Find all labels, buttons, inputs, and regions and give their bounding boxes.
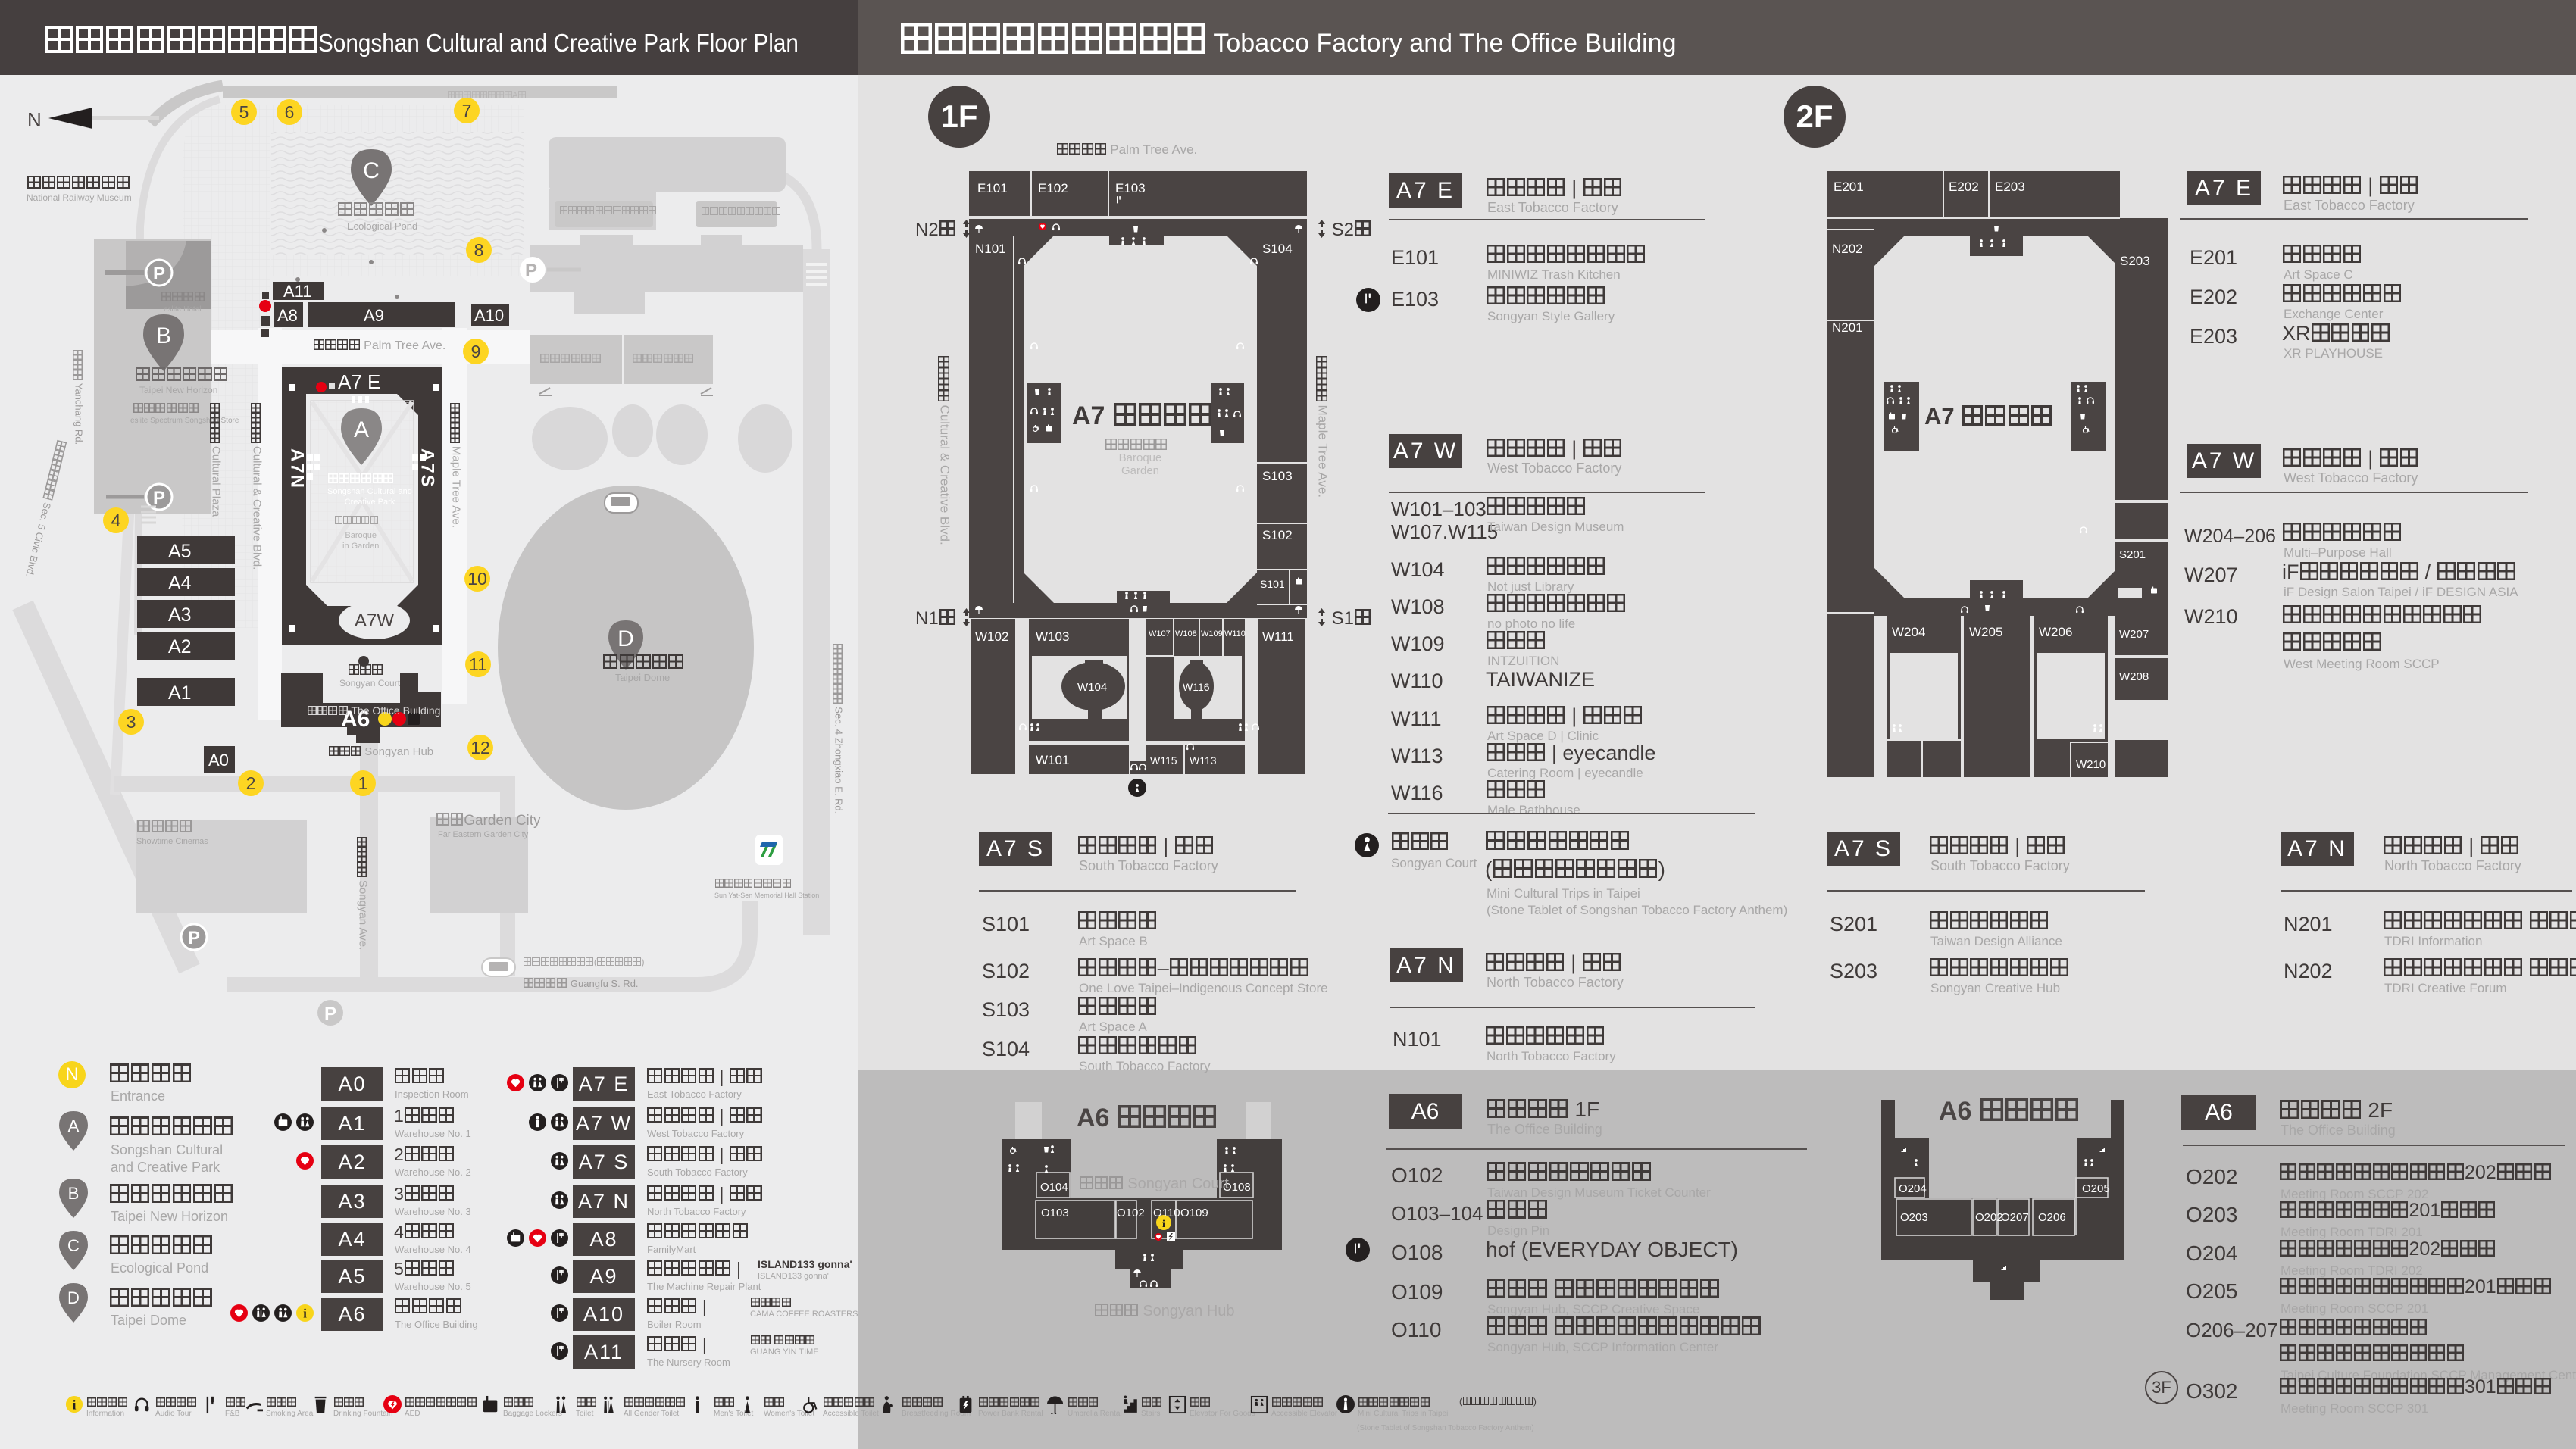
- svg-text:O207: O207: [2001, 1211, 2029, 1224]
- svg-text:O110: O110: [1153, 1207, 1180, 1219]
- svg-text:O206: O206: [2038, 1211, 2066, 1224]
- svg-text:O204: O204: [1899, 1182, 1927, 1195]
- svg-text:O202: O202: [1975, 1211, 2003, 1224]
- svg-text:O203: O203: [1900, 1211, 1928, 1224]
- svg-text:O109: O109: [1180, 1207, 1208, 1219]
- svg-text:i: i: [73, 1397, 77, 1413]
- svg-text:i: i: [303, 1306, 307, 1320]
- svg-text:O102: O102: [1117, 1207, 1145, 1219]
- svg-text:O205: O205: [2082, 1182, 2110, 1195]
- svg-text:O104: O104: [1040, 1181, 1068, 1194]
- svg-text:O103: O103: [1041, 1207, 1069, 1219]
- svg-text:i: i: [1162, 1219, 1165, 1230]
